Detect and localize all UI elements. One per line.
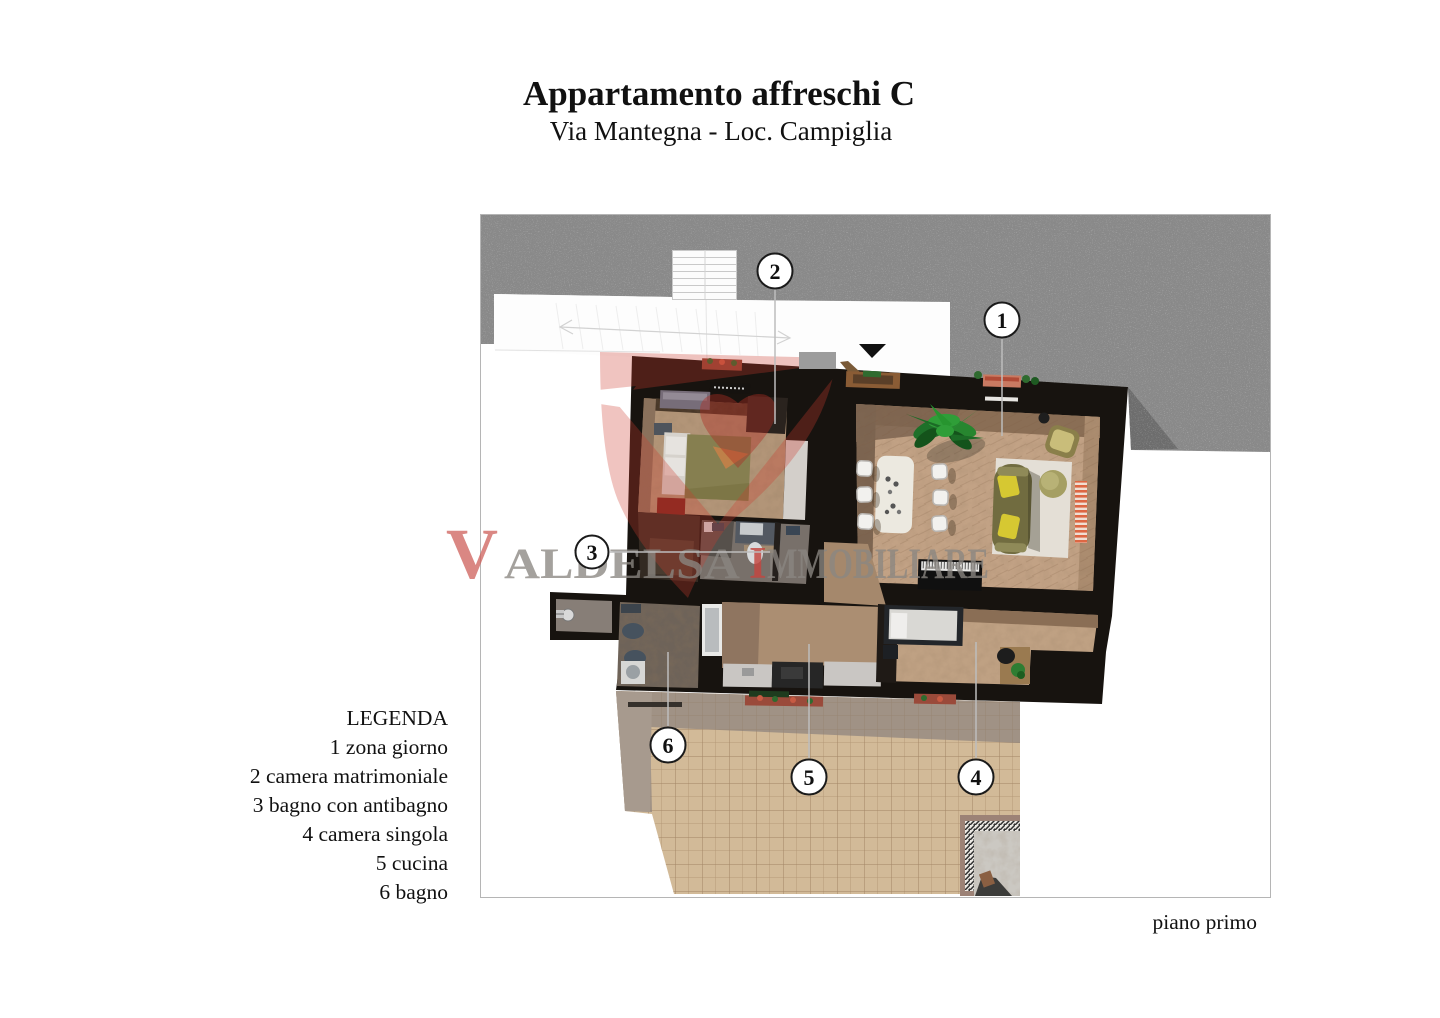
svg-text:LEGENDA: LEGENDA: [346, 706, 448, 730]
svg-text:4: 4: [971, 765, 982, 790]
svg-text:ALDELSA: ALDELSA: [504, 541, 740, 588]
svg-text:6: 6: [663, 733, 674, 758]
svg-text:1: 1: [997, 308, 1008, 333]
svg-text:5 cucina: 5 cucina: [376, 851, 449, 875]
svg-text:5: 5: [804, 765, 815, 790]
svg-text:MMOBILIARE: MMOBILIARE: [767, 541, 989, 588]
svg-text:Appartamento affreschi C: Appartamento affreschi C: [523, 74, 915, 113]
svg-text:piano primo: piano primo: [1153, 910, 1258, 934]
svg-text:3 bagno con antibagno: 3 bagno con antibagno: [253, 793, 448, 817]
svg-text:Via Mantegna - Loc. Campiglia: Via Mantegna - Loc. Campiglia: [550, 116, 893, 146]
svg-text:2: 2: [770, 259, 781, 284]
svg-text:2 camera matrimoniale: 2 camera matrimoniale: [250, 764, 448, 788]
svg-text:3: 3: [587, 540, 598, 565]
svg-text:6 bagno: 6 bagno: [379, 880, 448, 904]
svg-text:1 zona giorno: 1 zona giorno: [330, 735, 448, 759]
svg-text:4 camera singola: 4 camera singola: [302, 822, 448, 846]
svg-text:I: I: [749, 538, 767, 588]
svg-text:V: V: [446, 514, 498, 594]
